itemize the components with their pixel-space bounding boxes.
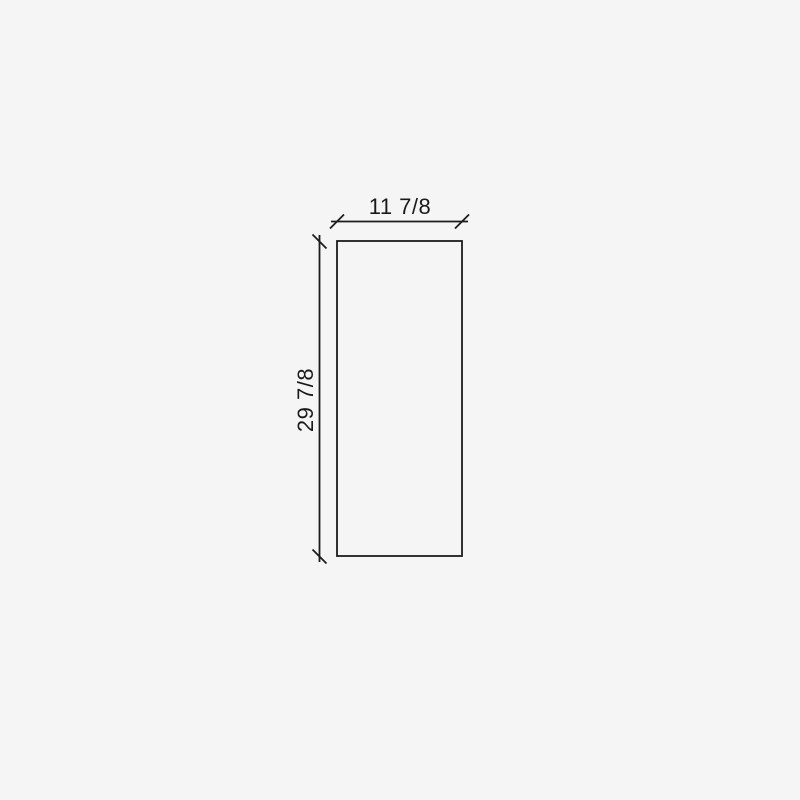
dimension-labels: 11 7/8 29 7/8 <box>293 194 431 432</box>
technical-drawing: 11 7/8 29 7/8 <box>0 0 800 800</box>
drawing-canvas: 11 7/8 29 7/8 <box>0 0 800 800</box>
drawing-linework <box>313 215 470 564</box>
height-dimension-label: 29 7/8 <box>293 368 318 432</box>
width-dimension-label: 11 7/8 <box>369 194 432 219</box>
part-outline <box>337 241 462 556</box>
